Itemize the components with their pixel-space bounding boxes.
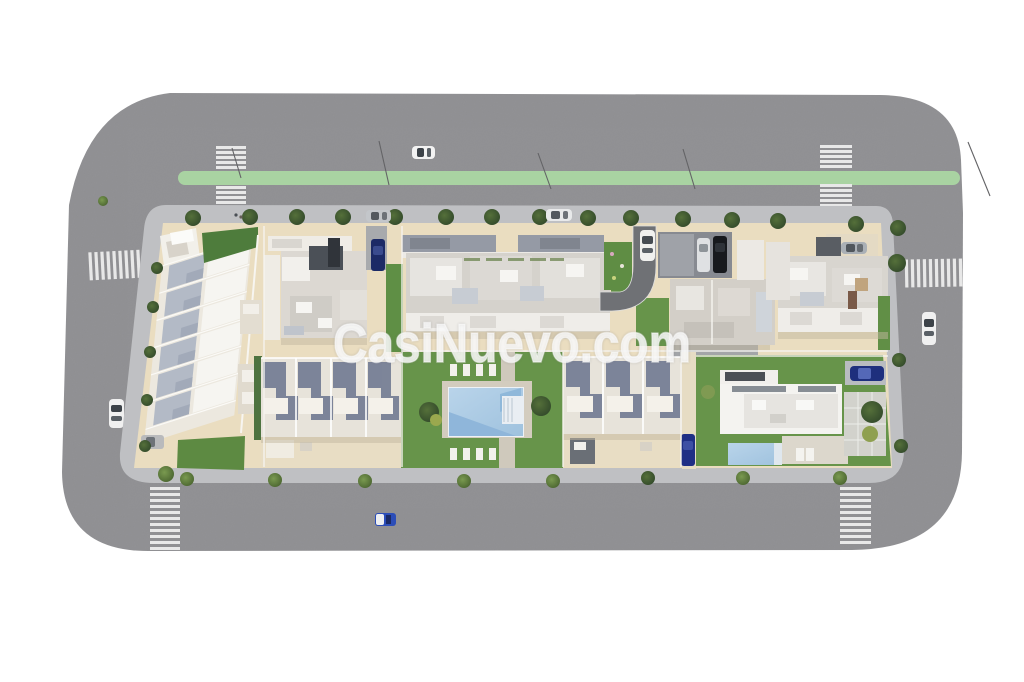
svg-text:CasiNuevo.com: CasiNuevo.com (333, 312, 691, 374)
